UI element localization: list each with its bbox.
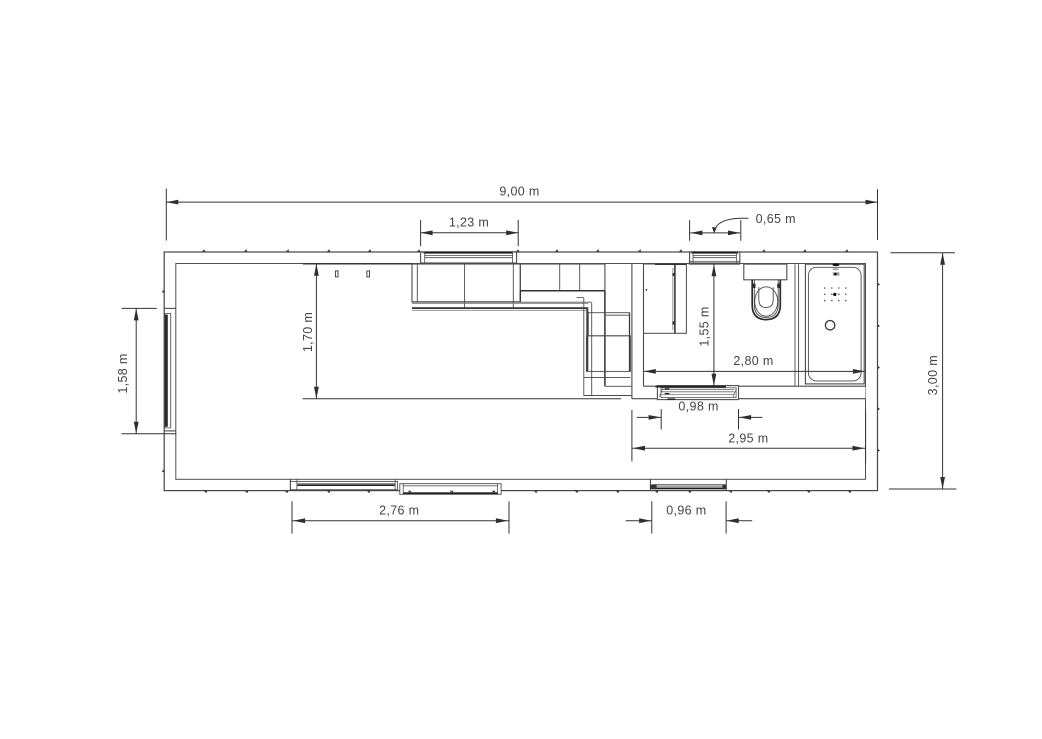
svg-text:9,00 m: 9,00 m xyxy=(499,184,539,198)
svg-text:1,58 m: 1,58 m xyxy=(116,353,130,393)
svg-text:0,65 m: 0,65 m xyxy=(756,212,796,226)
svg-text:0,96 m: 0,96 m xyxy=(666,504,706,518)
svg-text:3,00 m: 3,00 m xyxy=(926,355,940,395)
svg-text:1,55 m: 1,55 m xyxy=(698,306,712,346)
svg-text:2,76 m: 2,76 m xyxy=(379,504,419,518)
svg-text:2,95 m: 2,95 m xyxy=(728,432,768,446)
svg-text:1,70 m: 1,70 m xyxy=(301,312,315,352)
svg-text:0,98 m: 0,98 m xyxy=(678,400,718,414)
svg-text:2,80 m: 2,80 m xyxy=(733,354,773,368)
svg-text:1,23 m: 1,23 m xyxy=(449,216,489,230)
